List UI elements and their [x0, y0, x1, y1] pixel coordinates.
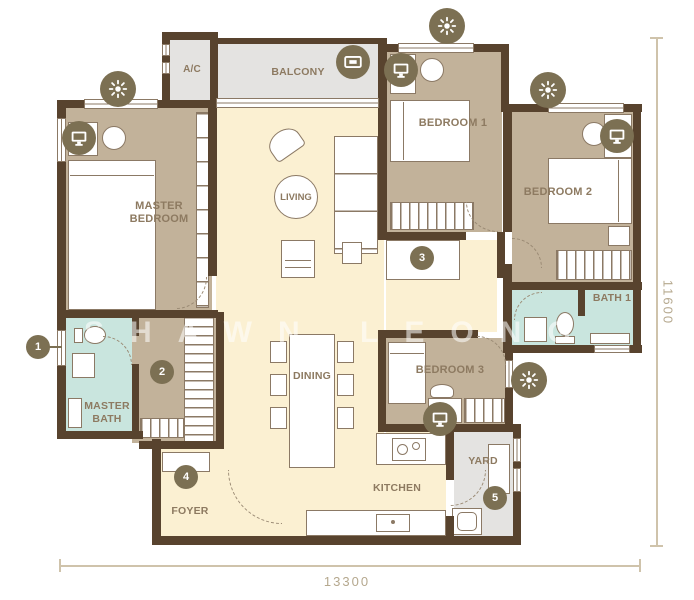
side-table: [342, 242, 362, 264]
sofa: [334, 136, 378, 254]
dimension-tick: [650, 545, 663, 547]
louver-window: [513, 438, 521, 462]
dimension-tick: [59, 559, 61, 572]
wall: [578, 290, 585, 316]
bedroom1-bed-pillow: [392, 102, 404, 160]
wall: [446, 516, 454, 536]
master-bed-pillow: [70, 162, 154, 176]
bedroom1-wardrobe: [390, 202, 474, 230]
tv-icon: [600, 119, 634, 153]
wall: [152, 439, 161, 545]
tv-icon: [423, 402, 457, 436]
dining-chair: [270, 407, 287, 429]
bedroom3-chair: [430, 384, 454, 398]
ceiling-light-icon: [511, 362, 547, 398]
room-label-bedroom2: BEDROOM 2: [518, 186, 598, 199]
window: [548, 103, 624, 113]
room-label-yard: YARD: [458, 455, 508, 468]
dimension-tick: [650, 37, 663, 39]
wall: [57, 310, 218, 318]
master-bed: [68, 160, 156, 310]
wall: [633, 104, 641, 353]
master-bedside-lamp: [102, 126, 126, 150]
walkin-rack-right: [184, 316, 214, 442]
bedroom2-bed-pillow: [618, 160, 630, 222]
bedroom3-wardrobe: [464, 398, 505, 423]
room-label-bath1: BATH 1: [592, 292, 632, 305]
room-label-ac: A/C: [172, 64, 212, 76]
washing-machine-drum: [457, 512, 477, 531]
tv-icon: [384, 53, 418, 87]
dimension-height: 11600: [661, 275, 676, 331]
dining-chair: [337, 341, 354, 363]
wall: [132, 318, 139, 336]
dining-chair: [270, 341, 287, 363]
dining-table: [289, 334, 335, 468]
living-label-text: LIVING: [280, 192, 312, 203]
wall: [512, 282, 642, 290]
stove-burner: [412, 442, 420, 450]
sliding-door-glass: [216, 98, 379, 108]
wall: [57, 431, 143, 439]
bath1-sink: [524, 317, 547, 342]
wall: [216, 312, 224, 449]
louver-window: [513, 468, 521, 492]
marker-5: 5: [483, 486, 507, 510]
room-label-kitchen: KITCHEN: [364, 482, 430, 495]
room-label-master-bath: MASTER BATH: [78, 400, 136, 425]
room-label-living: LIVING: [274, 175, 318, 219]
marker-2: 2: [150, 360, 174, 384]
ceiling-light-icon: [530, 72, 566, 108]
room-label-bedroom1: BEDROOM 1: [408, 117, 498, 130]
dining-chair: [270, 374, 287, 396]
wall-tv-icon: [336, 45, 370, 79]
dimension-line-right: [656, 38, 658, 546]
room-label-balcony: BALCONY: [262, 66, 334, 79]
dimension-tick: [639, 559, 641, 572]
bedroom1-lamp: [420, 58, 444, 82]
bath1-ledge: [590, 333, 630, 344]
wall: [378, 232, 466, 240]
floor-plan: SHAWN LEONG A/C BALCONY MASTER BEDROOM L…: [0, 0, 694, 600]
window: [594, 345, 630, 353]
coffee-table: [281, 240, 315, 278]
walkin-rack-bottom: [140, 418, 184, 438]
coffee-table-inset: [285, 260, 311, 268]
room-label-foyer: FOYER: [160, 505, 220, 518]
room-label-dining: DINING: [290, 370, 334, 383]
window: [57, 330, 66, 366]
sink-faucet: [391, 520, 395, 524]
stove-burner: [397, 444, 408, 455]
bedroom2-bedside-table: [608, 226, 630, 246]
marker-1: 1: [26, 335, 50, 359]
room-label-bedroom3: BEDROOM 3: [405, 364, 495, 377]
wall: [210, 38, 382, 44]
marker-4: 4: [174, 465, 198, 489]
ac-vent: [162, 44, 170, 56]
wall: [501, 44, 509, 112]
wall: [378, 330, 386, 432]
tv-icon: [62, 121, 96, 155]
ceiling-light-icon: [100, 71, 136, 107]
bath1-toilet-tank: [555, 336, 575, 344]
wall: [503, 104, 512, 232]
room-label-master-bedroom: MASTER BEDROOM: [118, 200, 200, 226]
wall: [378, 330, 478, 338]
window: [398, 43, 474, 53]
dining-chair: [337, 407, 354, 429]
wall: [497, 232, 505, 278]
wall: [139, 441, 216, 449]
master-bath-toilet-tank: [74, 328, 83, 343]
dining-chair: [337, 374, 354, 396]
master-bath-sink: [72, 353, 95, 378]
marker-3: 3: [410, 246, 434, 270]
wall: [152, 536, 521, 545]
bedroom3-bed-pillow: [390, 344, 424, 354]
ceiling-light-icon: [429, 8, 465, 44]
bedroom2-wardrobe: [556, 250, 632, 280]
dimension-width: 13300: [307, 574, 387, 589]
wall: [208, 100, 217, 276]
dimension-line-bottom: [60, 565, 640, 567]
marker-leader-line: [48, 346, 62, 348]
ac-vent: [162, 62, 170, 74]
bath1-toilet: [556, 312, 574, 336]
